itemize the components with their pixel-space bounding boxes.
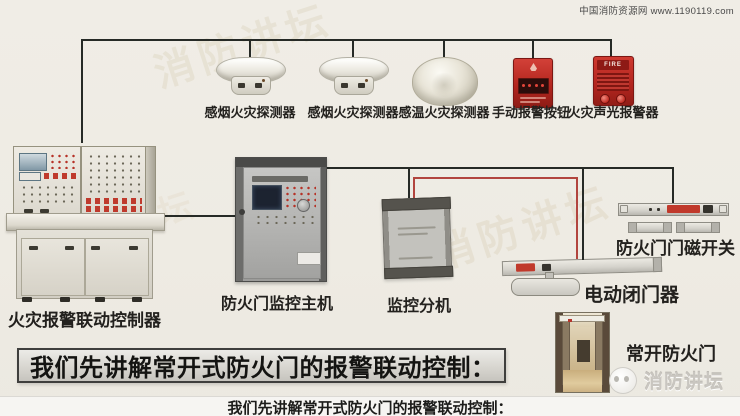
- fire-badge: FIRE: [597, 60, 629, 70]
- fire-alarm-controller-label: 火灾报警联动控制器: [8, 306, 161, 331]
- indicator-dot: [535, 84, 538, 87]
- corridor-end: [577, 340, 590, 362]
- smoke-detector-1-label: 感烟火灾探测器: [204, 102, 295, 121]
- red-label: [568, 319, 572, 322]
- detector-slot: [255, 83, 262, 88]
- logo-eye: [624, 376, 629, 382]
- sounder-grille: [597, 73, 629, 91]
- detector-slot: [358, 83, 365, 88]
- controller-lcd: [19, 153, 47, 171]
- detector-base: [231, 76, 271, 95]
- extension-text-line: [399, 256, 433, 259]
- door-monitor-host-label: 防火门监控主机: [221, 290, 333, 314]
- controller-indicators: [49, 153, 77, 169]
- controller-right-panel: [81, 146, 147, 215]
- panda-logo-icon: [609, 367, 637, 394]
- controller-cabinet: [16, 229, 153, 299]
- monitor-extension-label: 监控分机: [387, 292, 451, 316]
- cabinet-foot: [132, 297, 142, 302]
- door-handle: [91, 246, 100, 250]
- normally-open-door-photo: [555, 312, 610, 393]
- extension-text-line: [398, 233, 428, 236]
- subtitle-strip: 我们先讲解常开式防火门的报警联动控制：: [0, 396, 740, 416]
- door-magnetic-switch-label: 防火门门磁开关: [616, 234, 735, 259]
- fire-alarm-controller-image: [12, 143, 162, 303]
- fire-badge-text: FIRE: [604, 62, 622, 68]
- door-frame: [602, 313, 609, 392]
- cabinet-foot: [60, 297, 70, 302]
- detector-base: [334, 76, 374, 95]
- manual-call-point-label: 手动报警按钮: [492, 102, 570, 121]
- controller-side-edge: [145, 146, 156, 215]
- host-side-knob: [239, 209, 245, 215]
- host-label-slip: [297, 252, 321, 265]
- host-title-strip: [252, 176, 308, 182]
- smoke-detector-2-label: 感烟火灾探测器: [307, 102, 398, 121]
- extension-text-line: [398, 226, 436, 229]
- door-handle: [129, 246, 138, 250]
- electric-door-closer-label: 电动闭门器: [584, 280, 679, 307]
- normally-open-door-label: 常开防火门: [626, 340, 716, 366]
- controller-red-buttons: [86, 206, 142, 212]
- forum-logo: 消防讲坛: [609, 367, 724, 394]
- heat-detector-label: 感温火灾探测器: [398, 102, 489, 121]
- logo-eye: [614, 376, 619, 382]
- controller-red-buttons: [86, 198, 142, 204]
- call-point-window: [518, 78, 549, 94]
- controller-keypad: [18, 182, 77, 207]
- cabinet-foot: [22, 297, 32, 302]
- indicator-dot: [522, 84, 525, 87]
- host-top-cap: [236, 158, 326, 167]
- controller-red-buttons: [44, 173, 77, 179]
- controller-left-panel: [13, 146, 81, 215]
- indicator-dot: [528, 84, 531, 87]
- indicator-dot: [541, 84, 544, 87]
- forum-logo-text: 消防讲坛: [644, 367, 724, 394]
- controller-strip: [19, 172, 41, 181]
- smoke-detector-image: [216, 57, 284, 102]
- extension-top-cap: [382, 197, 451, 211]
- detector-slot: [238, 83, 245, 88]
- door-monitor-host-image: [235, 157, 327, 282]
- door-handle: [65, 246, 74, 250]
- detector-texture: [426, 73, 462, 97]
- detector-slot: [341, 83, 348, 88]
- lecture-banner-text: 我们先讲解常开式防火门的报警联动控制：: [19, 348, 496, 383]
- lecture-banner: 我们先讲解常开式防火门的报警联动控制：: [17, 348, 506, 383]
- host-to-switch-wire: [325, 168, 673, 203]
- smoke-detector-image: [319, 57, 387, 102]
- flame-icon: [530, 63, 537, 71]
- cabinet-foot: [95, 297, 105, 302]
- host-front-panel: [243, 167, 321, 279]
- corridor-floor: [563, 370, 602, 392]
- door-handle: [29, 246, 38, 250]
- detector-led: [365, 79, 368, 82]
- detector-led: [262, 79, 265, 82]
- heat-detector-image: [412, 57, 476, 104]
- controller-button-grid: [85, 151, 143, 195]
- host-key-row: [252, 212, 316, 224]
- sounder-strobe-label: 火灾声光报警器: [567, 102, 658, 121]
- photo-door-closer: [559, 315, 605, 322]
- label-line: [520, 97, 546, 99]
- host-display: [252, 185, 282, 210]
- manual-call-point-image: [513, 58, 553, 108]
- host-dial: [297, 199, 310, 212]
- slide: 消防讲坛 消防讲坛 消防讲坛 中国消防资源网 www.1190119.com 感…: [0, 0, 740, 416]
- monitor-extension-image: [382, 197, 453, 279]
- sounder-strobe-image: FIRE: [593, 56, 634, 106]
- subtitle-text: 我们先讲解常开式防火门的报警联动控制：: [227, 397, 512, 416]
